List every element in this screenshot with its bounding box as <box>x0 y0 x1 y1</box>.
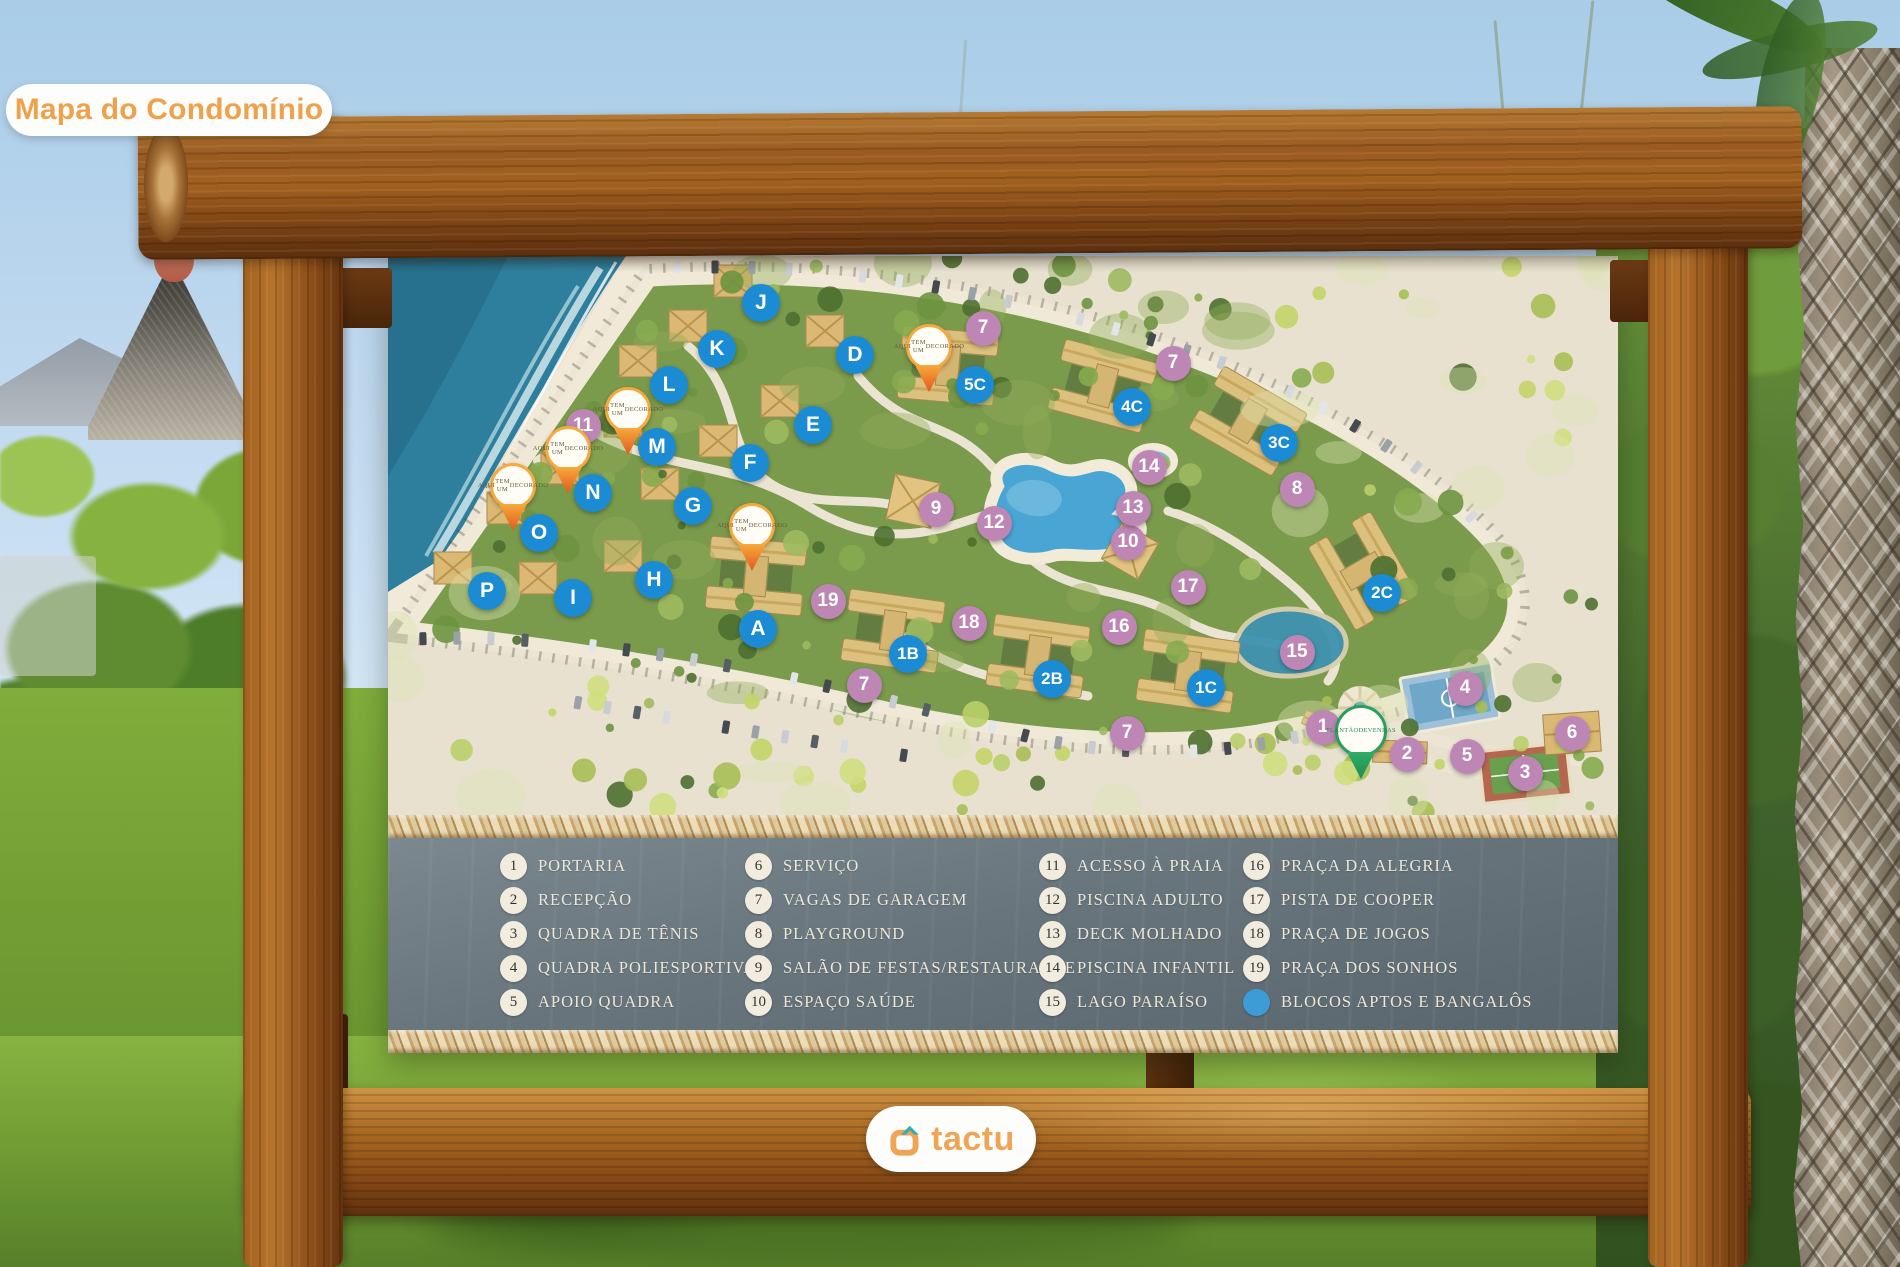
legend-number-circle: 19 <box>1243 955 1270 982</box>
parked-car <box>589 639 597 653</box>
legend-label: SALÃO DE FESTAS/RESTAURANTE <box>783 958 1076 978</box>
parked-car <box>453 632 460 645</box>
legend-label: QUADRA POLIESPORTIVA <box>538 958 756 978</box>
pavilion <box>886 474 941 529</box>
legend-number-circle: 2 <box>500 887 527 914</box>
legend-item: 10ESPAÇO SAÚDE <box>745 989 1076 1016</box>
parked-car <box>419 632 426 645</box>
parked-car <box>1088 741 1096 755</box>
title-badge: Mapa do Condomínio <box>6 84 332 136</box>
page-title: Mapa do Condomínio <box>15 93 324 127</box>
legend-number-circle: 11 <box>1039 853 1066 880</box>
parked-car <box>521 634 529 647</box>
service-building <box>1543 711 1602 755</box>
legend-label: LAGO PARAÍSO <box>1077 992 1208 1012</box>
map-legend: 1PORTARIA2RECEPÇÃO3QUADRA DE TÊNIS4QUADR… <box>388 838 1618 1030</box>
wood-beam-top <box>138 106 1803 260</box>
parked-car <box>1223 742 1231 756</box>
photo-of-condo-map-sign: 1PORTARIA2RECEPÇÃO3QUADRA DE TÊNIS4QUADR… <box>0 0 1900 1267</box>
parked-car <box>711 260 718 273</box>
legend-number-circle: 4 <box>500 955 527 982</box>
legend-label: PISCINA ADULTO <box>1077 890 1224 910</box>
legend-number-circle: 6 <box>745 853 772 880</box>
rope-border-top <box>388 815 1618 838</box>
legend-item: 17PISTA DE COOPER <box>1243 887 1532 914</box>
parked-car <box>748 261 755 274</box>
palm-trunk <box>1790 48 1900 1267</box>
legend-number-circle: 18 <box>1243 921 1270 948</box>
bungalow-house <box>519 562 557 594</box>
parked-car <box>1190 744 1198 757</box>
legend-number-circle: 8 <box>745 921 772 948</box>
bungalow-house <box>487 492 525 524</box>
legend-column-3: 11ACESSO À PRAIA12PISCINA ADULTO13DECK M… <box>1039 838 1235 1030</box>
legend-number-circle: 3 <box>500 921 527 948</box>
legend-blue-dot <box>1243 989 1270 1016</box>
legend-label: PISTA DE COOPER <box>1281 890 1435 910</box>
legend-label: PLAYGROUND <box>783 924 905 944</box>
legend-item: 7VAGAS DE GARAGEM <box>745 887 1076 914</box>
apartment-block <box>897 326 999 406</box>
legend-number-circle: 10 <box>745 989 772 1016</box>
legend-label: PRAÇA DA ALEGRIA <box>1281 856 1454 876</box>
legend-item: 11ACESSO À PRAIA <box>1039 853 1235 880</box>
wood-bracket <box>336 268 392 328</box>
log-end-face <box>144 126 188 242</box>
parked-car <box>487 632 494 645</box>
legend-number-circle: 1 <box>500 853 527 880</box>
legend-item: 15LAGO PARAÍSO <box>1039 989 1235 1016</box>
brand-logo-pill: tactu <box>866 1106 1036 1172</box>
legend-label: PORTARIA <box>538 856 626 876</box>
legend-item: 13DECK MOLHADO <box>1039 921 1235 948</box>
legend-label: SERVIÇO <box>783 856 859 876</box>
legend-number-circle: 9 <box>745 955 772 982</box>
legend-item: 19PRAÇA DOS SONHOS <box>1243 955 1532 982</box>
site-plan-illustration <box>388 256 1618 815</box>
legend-label: ACESSO À PRAIA <box>1077 856 1224 876</box>
legend-number-circle: 13 <box>1039 921 1066 948</box>
left-wall <box>0 556 96 676</box>
tactu-house-icon <box>887 1121 923 1157</box>
legend-label: DECK MOLHADO <box>1077 924 1222 944</box>
legend-number-circle: 5 <box>500 989 527 1016</box>
legend-label: ESPAÇO SAÚDE <box>783 992 916 1012</box>
bungalow-house <box>806 315 844 347</box>
legend-item: 5APOIO QUADRA <box>500 989 756 1016</box>
map-board: 1PORTARIA2RECEPÇÃO3QUADRA DE TÊNIS4QUADR… <box>388 256 1618 1053</box>
rope-border-bottom <box>388 1030 1618 1053</box>
legend-number-circle: 15 <box>1039 989 1066 1016</box>
legend-label: PRAÇA DOS SONHOS <box>1281 958 1458 978</box>
brand-name: tactu <box>931 1120 1015 1159</box>
legend-item: 18PRAÇA DE JOGOS <box>1243 921 1532 948</box>
service-building <box>1373 740 1428 764</box>
legend-label: PISCINA INFANTIL <box>1077 958 1235 978</box>
legend-label: BLOCOS APTOS E BANGALÔS <box>1281 992 1532 1012</box>
legend-item: 6SERVIÇO <box>745 853 1076 880</box>
wood-post-right <box>1648 118 1748 1267</box>
legend-item: 1PORTARIA <box>500 853 756 880</box>
legend-label: VAGAS DE GARAGEM <box>783 890 967 910</box>
legend-number-circle: 16 <box>1243 853 1270 880</box>
legend-item: 14PISCINA INFANTIL <box>1039 955 1235 982</box>
legend-item: 9SALÃO DE FESTAS/RESTAURANTE <box>745 955 1076 982</box>
parked-car <box>674 261 681 274</box>
legend-column-1: 1PORTARIA2RECEPÇÃO3QUADRA DE TÊNIS4QUADR… <box>500 838 756 1030</box>
legend-item: 12PISCINA ADULTO <box>1039 887 1235 914</box>
legend-column-4: 16PRAÇA DA ALEGRIA17PISTA DE COOPER18PRA… <box>1243 838 1532 1030</box>
legend-item: 8PLAYGROUND <box>745 921 1076 948</box>
legend-item: 3QUADRA DE TÊNIS <box>500 921 756 948</box>
legend-label: RECEPÇÃO <box>538 890 632 910</box>
parked-car <box>785 263 793 276</box>
legend-label: APOIO QUADRA <box>538 992 675 1012</box>
service-building <box>1454 745 1480 767</box>
parked-car <box>1122 744 1130 757</box>
legend-item: 16PRAÇA DA ALEGRIA <box>1243 853 1532 880</box>
legend-label: PRAÇA DE JOGOS <box>1281 924 1431 944</box>
legend-number-circle: 14 <box>1039 955 1066 982</box>
legend-number-circle: 7 <box>745 887 772 914</box>
legend-label: QUADRA DE TÊNIS <box>538 924 699 944</box>
legend-column-2: 6SERVIÇO7VAGAS DE GARAGEM8PLAYGROUND9SAL… <box>745 838 1076 1030</box>
legend-item: 2RECEPÇÃO <box>500 887 756 914</box>
wood-post-left <box>243 118 343 1267</box>
legend-number-circle: 12 <box>1039 887 1066 914</box>
bungalow-house <box>699 425 737 457</box>
legend-number-circle: 17 <box>1243 887 1270 914</box>
legend-item: BLOCOS APTOS E BANGALÔS <box>1243 989 1532 1016</box>
legend-item: 4QUADRA POLIESPORTIVA <box>500 955 756 982</box>
